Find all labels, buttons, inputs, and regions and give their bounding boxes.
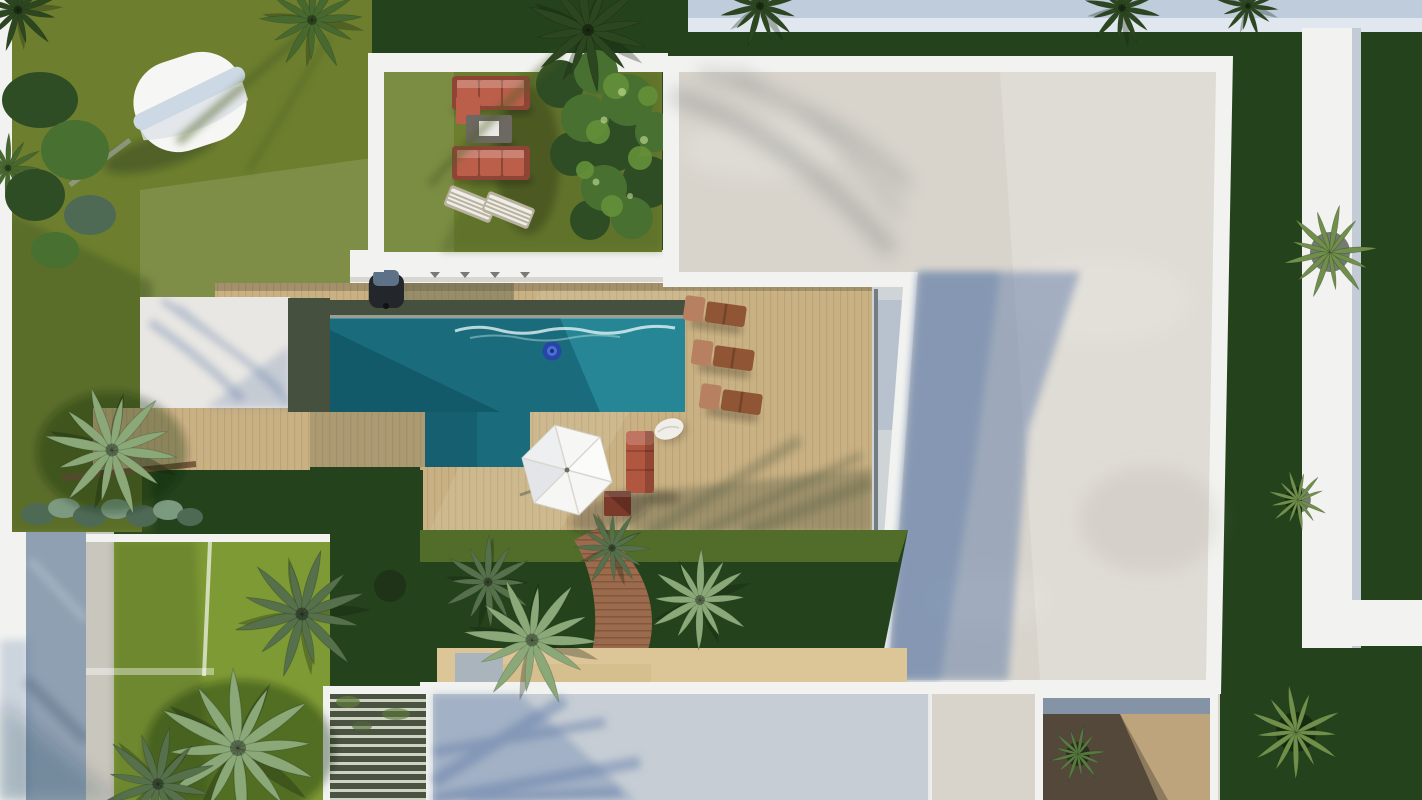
garden-wall-band: [86, 532, 114, 800]
right-wall-corner: [1302, 600, 1422, 646]
louvered-pergola: [323, 686, 427, 800]
patio-opening: [1035, 690, 1218, 800]
scene-canvas: Aerial top-down 3D architectural renderi…: [0, 0, 1422, 800]
front-lawn-wall-top: [86, 534, 338, 542]
courtyard-wall-left: [368, 53, 384, 272]
right-garden-wall-shade: [1352, 28, 1361, 648]
front-lawn-wall-bottom: [86, 668, 214, 675]
left-wall: [0, 0, 12, 534]
concrete-pad: [140, 297, 290, 408]
pool-float: [543, 342, 562, 361]
opening-slope: [1043, 698, 1210, 714]
bbq-grill: [369, 270, 404, 309]
side-table: [604, 491, 631, 516]
garden-shrub: [374, 570, 406, 602]
aerial-villa-render: Aerial top-down 3D architectural renderi…: [0, 0, 1422, 800]
pool-coping-left: [288, 298, 330, 412]
right-garden-wall: [1302, 28, 1360, 648]
courtyard-wall-top: [368, 53, 668, 72]
pergola-slats: [330, 694, 426, 800]
courtyard-patio: [368, 50, 675, 272]
